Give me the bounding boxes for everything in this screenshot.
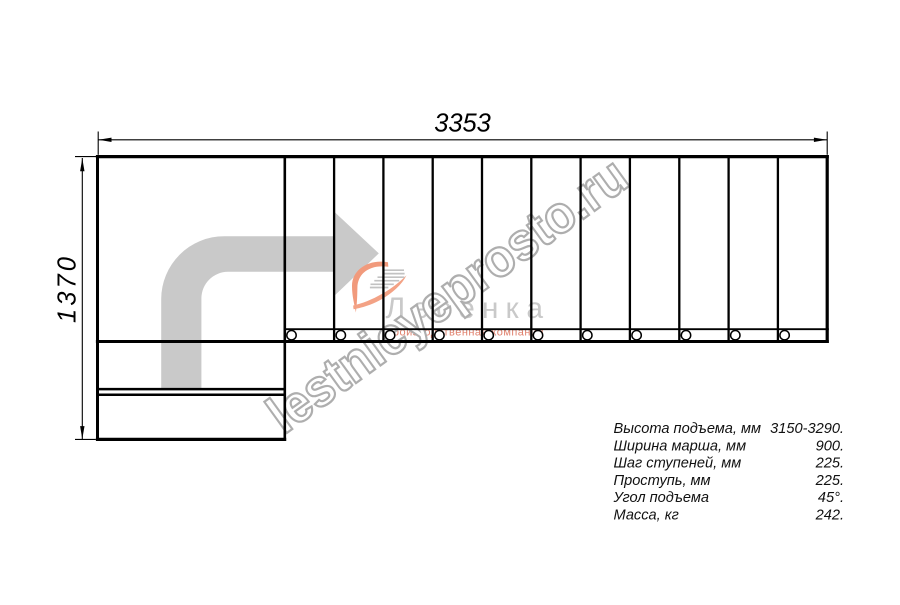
svg-text:Ширина марша, мм: Ширина марша, мм (614, 438, 747, 454)
svg-text:225.: 225. (815, 473, 844, 489)
svg-text:Масса, кг: Масса, кг (614, 508, 679, 524)
svg-text:242.: 242. (815, 508, 844, 524)
svg-text:45°.: 45°. (818, 490, 844, 506)
svg-text:900.: 900. (816, 438, 844, 454)
svg-text:Угол подъема: Угол подъема (613, 490, 709, 506)
svg-text:Проступь, мм: Проступь, мм (614, 473, 711, 489)
svg-text:3150-3290.: 3150-3290. (770, 421, 844, 437)
svg-text:225.: 225. (815, 456, 844, 472)
svg-text:Шаг ступеней, мм: Шаг ступеней, мм (614, 456, 742, 472)
svg-text:3353: 3353 (434, 110, 491, 138)
svg-text:Высота подъема, мм: Высота подъема, мм (614, 421, 762, 437)
